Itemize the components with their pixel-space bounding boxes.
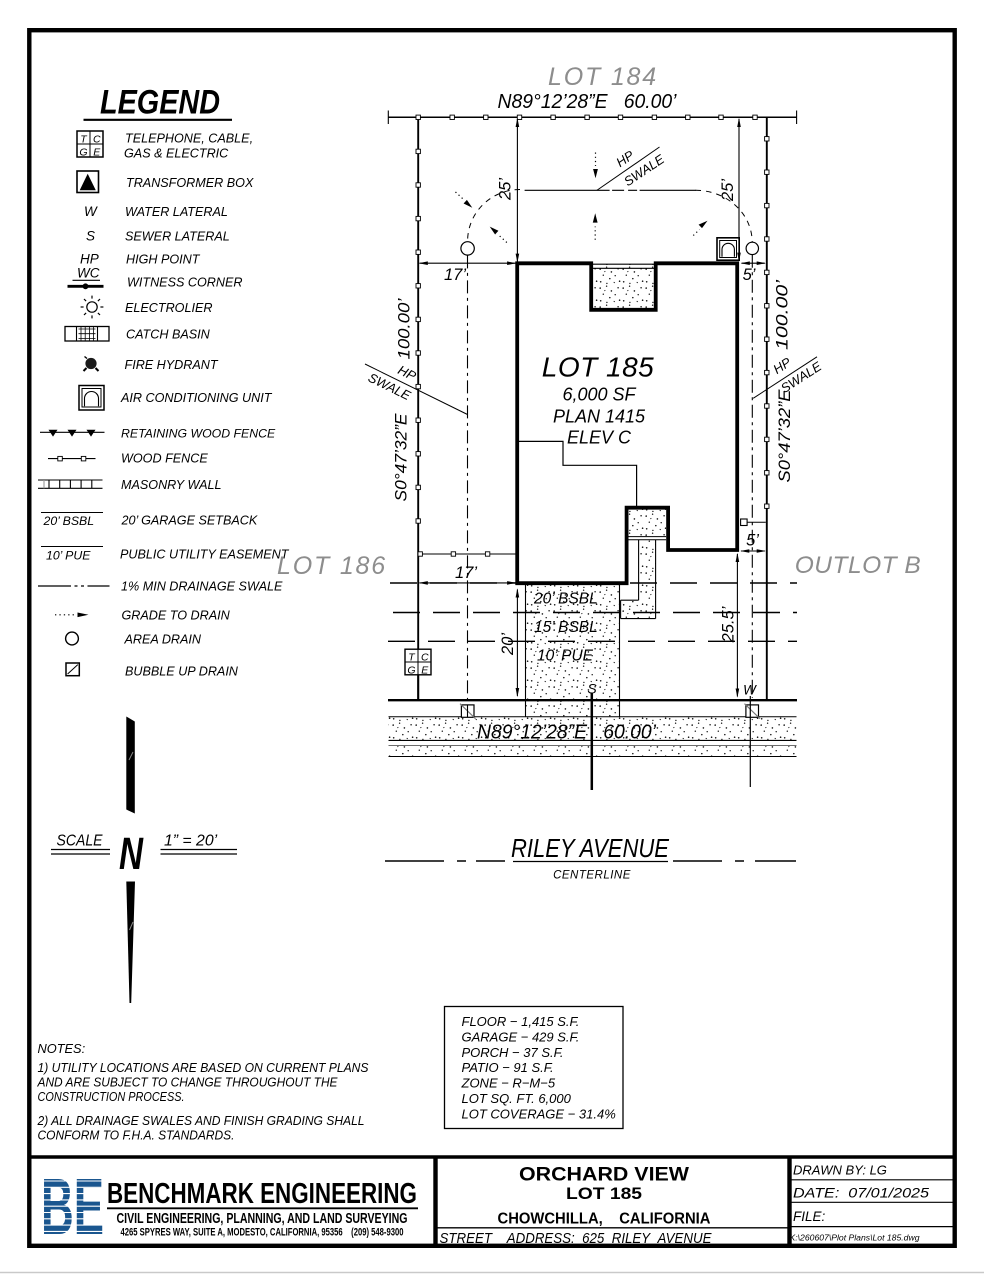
svg-text:LOT 186: LOT 186: [277, 552, 387, 580]
svg-text:N89°12’28”E 60.00’: N89°12’28”E 60.00’: [477, 722, 657, 744]
svg-text:25’: 25’: [497, 178, 515, 201]
svg-text:ELECTROLIER: ELECTROLIER: [125, 301, 212, 315]
svg-text:ORCHARD VIEW: ORCHARD VIEW: [519, 1165, 689, 1186]
svg-text:TRANSFORMER BOX: TRANSFORMER BOX: [126, 176, 254, 190]
svg-text:LEGEND: LEGEND: [100, 84, 220, 122]
svg-text:NOTES:: NOTES:: [38, 1041, 86, 1056]
svg-text:OUTLOT B: OUTLOT B: [795, 552, 922, 579]
svg-text:LOT 184: LOT 184: [548, 63, 658, 91]
svg-text:5’: 5’: [743, 266, 756, 284]
svg-text:GRADE TO DRAIN: GRADE TO DRAIN: [122, 609, 231, 623]
svg-text:CONFORM TO F.H.A. STANDARDS: CONFORM TO F.H.A. STANDARDS.: [38, 1128, 235, 1143]
svg-text:LOT 185: LOT 185: [566, 1185, 642, 1203]
svg-text:W: W: [743, 683, 757, 698]
svg-text:HP: HP: [80, 252, 99, 267]
svg-text:CATCH BASIN: CATCH BASIN: [126, 328, 211, 342]
svg-text:1” = 20’: 1” = 20’: [164, 833, 218, 850]
svg-text:RETAINING WOOD FENCE: RETAINING WOOD FENCE: [121, 427, 276, 441]
svg-text:WOOD FENCE: WOOD FENCE: [121, 452, 208, 466]
svg-text:WATER LATERAL: WATER LATERAL: [125, 205, 228, 219]
svg-text:AND ARE SUBJECT TO CHANGE: AND ARE SUBJECT TO CHANGE THROUGHOUT THE: [37, 1075, 338, 1090]
svg-text:S: S: [86, 229, 95, 244]
svg-text:PUBLIC UTILITY EASEMENT: PUBLIC UTILITY EASEMENT: [120, 548, 290, 562]
svg-text:SCALE: SCALE: [57, 833, 103, 850]
svg-text:PLAN 1415: PLAN 1415: [553, 407, 646, 427]
svg-text:CENTERLINE: CENTERLINE: [553, 870, 631, 882]
svg-text:S0°47’32”E: S0°47’32”E: [392, 413, 411, 502]
svg-text:10’ PUE: 10’ PUE: [46, 549, 91, 563]
svg-text:WITNESS CORNER: WITNESS CORNER: [127, 276, 242, 290]
svg-text:BENCHMARK ENGINEERING: BENCHMARK ENGINEERING: [107, 1178, 417, 1210]
svg-text:LOT COVERAGE − 31.4%: LOT COVERAGE − 31.4%: [462, 1106, 616, 1121]
svg-text:G: G: [79, 146, 87, 158]
svg-text:WC: WC: [77, 266, 100, 281]
svg-text:FLOOR − 1,415 S.F.: FLOOR − 1,415 S.F.: [462, 1014, 580, 1029]
svg-text:100.00’: 100.00’: [395, 298, 414, 359]
svg-text:PORCH − 37 S.F.: PORCH − 37 S.F.: [462, 1045, 564, 1060]
svg-text:17’: 17’: [444, 266, 466, 284]
svg-text:100.00’: 100.00’: [773, 280, 792, 350]
svg-text:1) UTILITY LOCATIONS ARE B: 1) UTILITY LOCATIONS ARE BASED ON CURREN…: [38, 1060, 369, 1075]
svg-text:4265 SPYRES WAY, SUITE A, MODE: 4265 SPYRES WAY, SUITE A, MODESTO, CALIF…: [121, 1227, 404, 1239]
svg-text:20’ BSBL: 20’ BSBL: [533, 591, 598, 608]
svg-text:5’: 5’: [746, 532, 759, 550]
svg-text:CONSTRUCTION PROCESS.: CONSTRUCTION PROCESS.: [38, 1089, 185, 1104]
svg-text:CHOWCHILLA, CALIFORNIA: CHOWCHILLA, CALIFORNIA: [498, 1211, 711, 1228]
svg-text:K:\260607\Plot Plans\Lot 185: K:\260607\Plot Plans\Lot 185.dwg: [790, 1233, 920, 1243]
svg-text:10’ PUE: 10’ PUE: [537, 648, 594, 665]
svg-text:RILEY AVENUE: RILEY AVENUE: [511, 833, 670, 863]
svg-text:GARAGE − 429 S.F.: GARAGE − 429 S.F.: [462, 1029, 580, 1044]
svg-text:E: E: [93, 146, 101, 158]
svg-text:20’ BSBL: 20’ BSBL: [43, 514, 95, 528]
svg-text:2) ALL DRAINAGE SWALES AND: 2) ALL DRAINAGE SWALES AND FINISH GRADIN…: [37, 1113, 365, 1128]
svg-text:1% MIN DRAINAGE SWALE: 1% MIN DRAINAGE SWALE: [121, 580, 283, 594]
svg-text:C: C: [93, 133, 101, 145]
svg-text:17’: 17’: [455, 564, 477, 582]
svg-text:MASONRY WALL: MASONRY WALL: [121, 478, 222, 492]
svg-text:AIR CONDITIONING UNIT: AIR CONDITIONING UNIT: [120, 391, 273, 405]
svg-text:HIGH POINT: HIGH POINT: [126, 253, 201, 267]
svg-text:C: C: [421, 652, 429, 664]
svg-text:G: G: [407, 664, 415, 676]
svg-text:6,000 SF: 6,000 SF: [562, 385, 636, 405]
svg-text:DRAWN BY: LG: DRAWN BY: LG: [793, 1163, 887, 1178]
svg-text:S0°47’32”E: S0°47’32”E: [775, 389, 794, 483]
svg-text:20’ GARAGE SETBACK: 20’ GARAGE SETBACK: [121, 514, 258, 528]
svg-text:TELEPHONE, CABLE,: TELEPHONE, CABLE,: [125, 132, 253, 146]
svg-text:N89°12’28”E 60.00’: N89°12’28”E 60.00’: [498, 91, 678, 113]
svg-text:20’: 20’: [499, 633, 517, 656]
svg-text:25’: 25’: [719, 179, 737, 202]
svg-text:E: E: [421, 664, 429, 676]
svg-text:ELEV C: ELEV C: [567, 428, 632, 448]
svg-text:ZONE − R−M−5: ZONE − R−M−5: [461, 1076, 556, 1091]
svg-text:FILE:: FILE:: [793, 1209, 826, 1224]
svg-text:PATIO − 91 S.F.: PATIO − 91 S.F.: [462, 1060, 554, 1075]
svg-text:SEWER LATERAL: SEWER LATERAL: [125, 230, 230, 244]
svg-text:DATE: 07/01/2025: DATE: 07/01/2025: [793, 1185, 929, 1201]
svg-text:GAS & ELECTRIC: GAS & ELECTRIC: [124, 147, 229, 161]
svg-text:CIVIL ENGINEERING, PLANNING, A: CIVIL ENGINEERING, PLANNING, AND LAND SU…: [117, 1210, 408, 1227]
svg-text:25.5’: 25.5’: [720, 606, 738, 643]
svg-text:STREET ADDRESS: 625 RILEY: STREET ADDRESS: 625 RILEY AVENUE: [440, 1231, 712, 1247]
svg-text:AREA DRAIN: AREA DRAIN: [124, 633, 202, 647]
svg-text:N: N: [119, 828, 144, 879]
svg-text:BUBBLE UP DRAIN: BUBBLE UP DRAIN: [125, 665, 239, 679]
svg-text:15’ BSBL: 15’ BSBL: [534, 619, 598, 636]
svg-text:FIRE HYDRANT: FIRE HYDRANT: [125, 358, 219, 372]
svg-text:LOT SQ. FT. 6,000: LOT SQ. FT. 6,000: [462, 1091, 572, 1106]
svg-text:W: W: [84, 204, 98, 219]
svg-text:LOT 185: LOT 185: [542, 352, 654, 383]
